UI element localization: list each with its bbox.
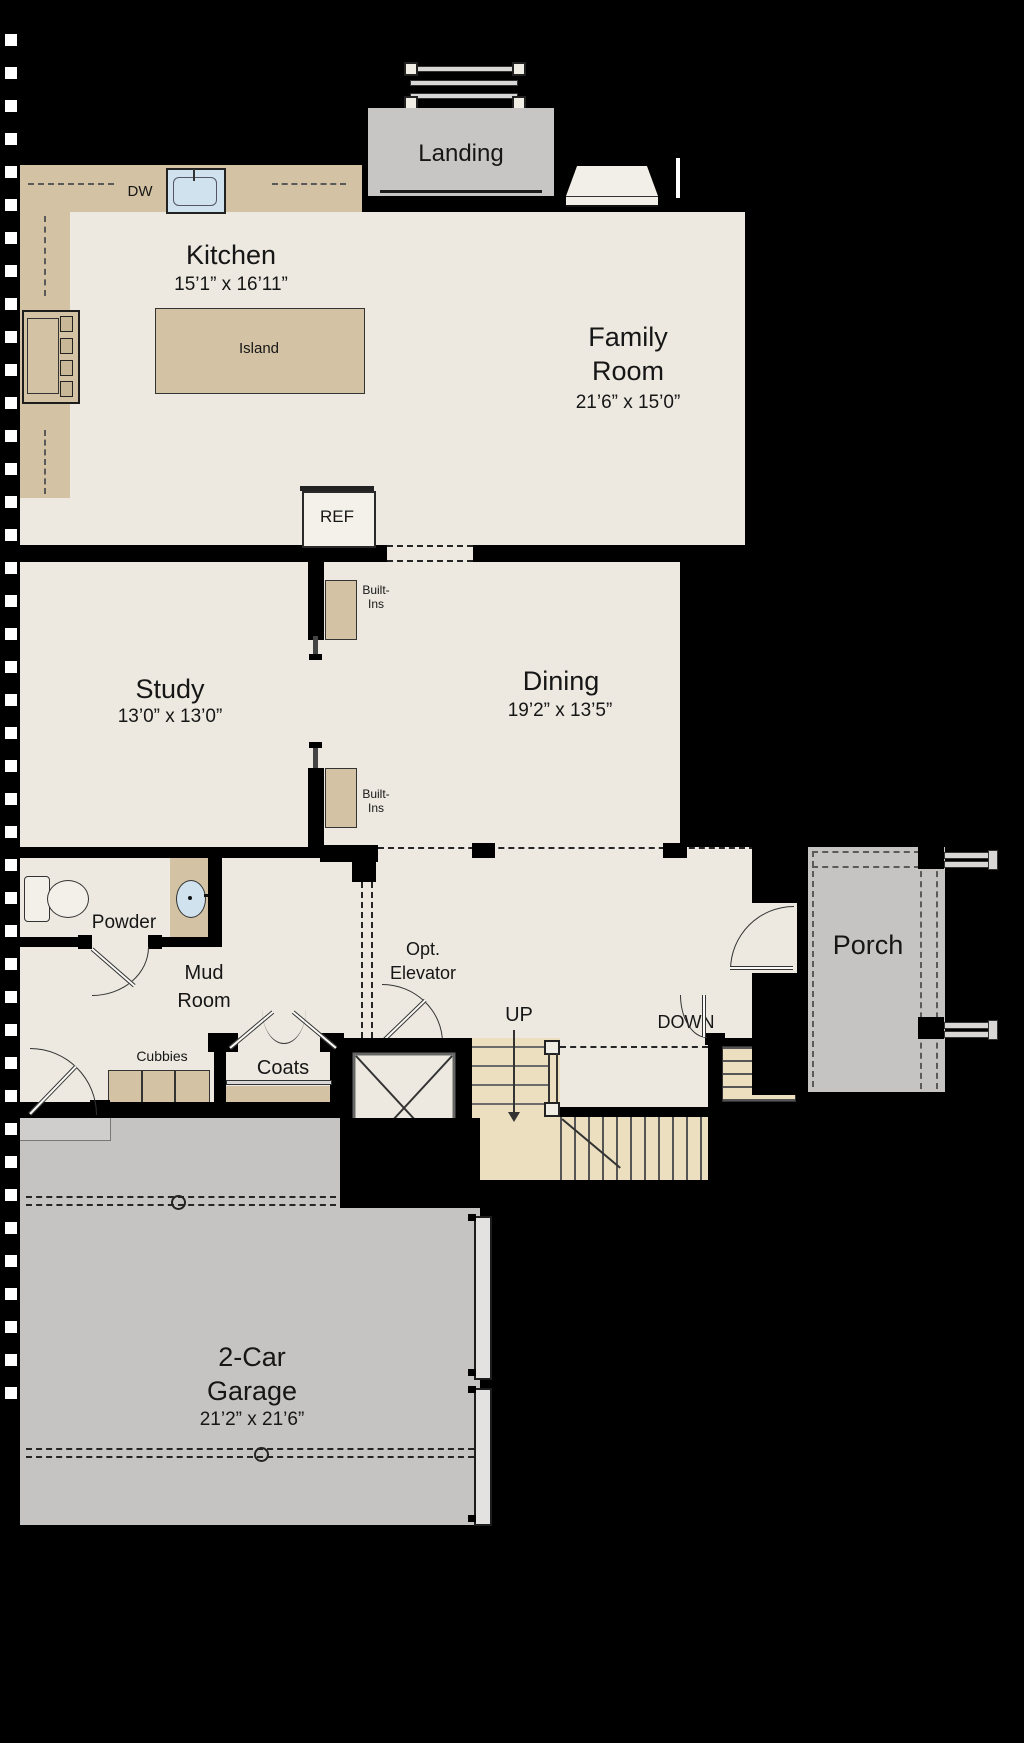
- kitchen-dims: 15’1” x 16’11”: [121, 274, 341, 296]
- range-knob: [60, 338, 73, 354]
- garage-track-pivot: [254, 1447, 269, 1462]
- porch-step: [944, 1031, 990, 1038]
- dining-dims: 19’2” x 13’5”: [450, 700, 670, 722]
- family-room-dims: 21’6” x 15’0”: [528, 392, 728, 414]
- stair-wall: [708, 1035, 722, 1180]
- built-ins-lower-line1: Built-: [346, 788, 406, 802]
- stair-newel: [544, 1102, 560, 1117]
- wall-stub: [352, 860, 376, 882]
- powder-wall: [20, 937, 80, 947]
- porch-step-cap: [988, 850, 998, 870]
- cubbies-label: Cubbies: [112, 1048, 212, 1064]
- garage-label: Garage: [152, 1376, 352, 1407]
- range-knob: [60, 381, 73, 397]
- porch-dashed: [812, 851, 920, 853]
- stair-rail: [548, 1053, 558, 1102]
- built-ins-upper-line1: Built-: [346, 584, 406, 598]
- stairs-down-door-leaf: [702, 995, 706, 1037]
- stairs-up-treads: [472, 1046, 550, 1106]
- dw-label: DW: [120, 183, 160, 200]
- garage-track-dashed: [26, 1456, 474, 1458]
- landing-steps-bar: [410, 80, 518, 86]
- cased-opening-dashed: [387, 545, 473, 562]
- garage-door-bracket: [468, 1369, 476, 1376]
- range-door: [27, 318, 59, 394]
- left-edge-strip: [0, 28, 20, 1403]
- floor-plan: Landing Fireplace DW Kitchen 15’1” x 16’…: [0, 0, 1024, 1743]
- powder-wall: [208, 858, 222, 947]
- porch-dashed: [812, 851, 814, 1087]
- sink-faucet: [193, 169, 195, 181]
- built-ins-upper-line2: Ins: [346, 598, 406, 612]
- built-ins-upper-label: Built- Ins: [346, 584, 406, 612]
- door-jamb: [78, 935, 92, 949]
- range-knob: [60, 360, 73, 376]
- stair-ceiling-dashed: [560, 1046, 708, 1048]
- opt-elevator-label: Opt.: [363, 939, 483, 960]
- door-jamb: [148, 935, 162, 949]
- porch-step-cap: [988, 1020, 998, 1040]
- range-knob: [60, 316, 73, 332]
- opt-elevator-label: Elevator: [363, 963, 483, 984]
- wall-stub: [308, 562, 324, 640]
- mud-wall: [110, 1102, 345, 1118]
- garage-door-bracket: [468, 1386, 476, 1393]
- porch-post: [918, 1017, 944, 1039]
- garage-door-bracket: [468, 1515, 476, 1522]
- porch-dashed: [920, 851, 922, 1089]
- dining-label: Dining: [461, 666, 661, 697]
- fireplace-base: [566, 196, 658, 207]
- porch-step: [944, 852, 990, 859]
- front-door-leaf: [730, 966, 793, 970]
- landing-label: Landing: [368, 140, 554, 168]
- stairs-down-treads: [560, 1117, 708, 1180]
- garage-door-panel: [474, 1216, 492, 1380]
- upper-cabinet-dashed: [28, 183, 114, 185]
- study-dims: 13’0” x 13’0”: [60, 706, 280, 728]
- pocket-door-cap: [309, 654, 322, 660]
- kitchen-sink-basin: [173, 177, 217, 206]
- coats-label: Coats: [238, 1057, 328, 1080]
- rail-post: [404, 62, 418, 76]
- garage-door-bracket: [468, 1214, 476, 1221]
- door-jamb: [705, 1033, 725, 1045]
- ref-label: REF: [302, 507, 372, 527]
- family-room-label: Family: [538, 322, 718, 353]
- island-label: Island: [155, 340, 363, 357]
- fireplace-shape: [566, 166, 658, 196]
- porch-dashed: [812, 866, 920, 868]
- kitchen-label: Kitchen: [131, 240, 331, 271]
- upper-cabinet-dashed: [44, 216, 46, 296]
- elevator-dashed-outline: [371, 882, 373, 1038]
- stair-wall: [560, 1107, 708, 1117]
- family-room-label: Room: [538, 356, 718, 387]
- stairs-up-label: UP: [489, 1004, 549, 1027]
- stairs-up-arrowhead: [508, 1112, 520, 1122]
- window-mark: [676, 158, 680, 198]
- powder-wall: [162, 937, 222, 947]
- porch-label: Porch: [790, 930, 946, 961]
- powder-sink-drain: [188, 896, 192, 900]
- cubbies-bench: [108, 1070, 210, 1106]
- wall-stub: [308, 768, 324, 847]
- garage-label: 2-Car: [152, 1342, 352, 1373]
- cubbies-divider: [141, 1070, 143, 1104]
- porch-step: [944, 861, 990, 868]
- closet-shelf: [226, 1086, 330, 1102]
- pocket-door: [313, 746, 318, 768]
- upper-cabinet-dashed: [272, 183, 346, 185]
- landing-steps-bar: [410, 93, 518, 99]
- garage-door-panel: [474, 1388, 492, 1526]
- built-ins-lower-line2: Ins: [346, 802, 406, 816]
- porch-step: [944, 1022, 990, 1029]
- mud-room-label: Room: [144, 990, 264, 1013]
- room-stairhall-floor: [560, 1038, 708, 1108]
- elevator-dashed-outline: [361, 882, 363, 1038]
- closet-wall: [214, 1052, 226, 1102]
- garage-track-pivot: [171, 1195, 186, 1210]
- rail-post: [512, 62, 526, 76]
- pocket-door-cap: [309, 742, 322, 748]
- cubbies-divider: [174, 1070, 176, 1104]
- study-label: Study: [70, 674, 270, 705]
- powder-label: Powder: [62, 912, 186, 934]
- closet-rod: [226, 1080, 332, 1085]
- porch-dashed: [936, 851, 938, 1089]
- porch-post: [918, 847, 944, 869]
- landing-step-edge: [380, 190, 542, 193]
- garage-notch-wall: [340, 1118, 480, 1208]
- garage-dims: 21’2” x 21’6”: [142, 1409, 362, 1431]
- upper-cabinet-dashed: [44, 430, 46, 494]
- mud-room-label: Mud: [144, 962, 264, 985]
- stairs-up-arrow: [513, 1030, 515, 1112]
- landing-steps-bar: [410, 66, 518, 72]
- garage-track-dashed: [26, 1448, 474, 1450]
- room-porch-floor: [808, 847, 945, 1092]
- garage-step: [20, 1118, 111, 1141]
- built-ins-lower-label: Built- Ins: [346, 788, 406, 816]
